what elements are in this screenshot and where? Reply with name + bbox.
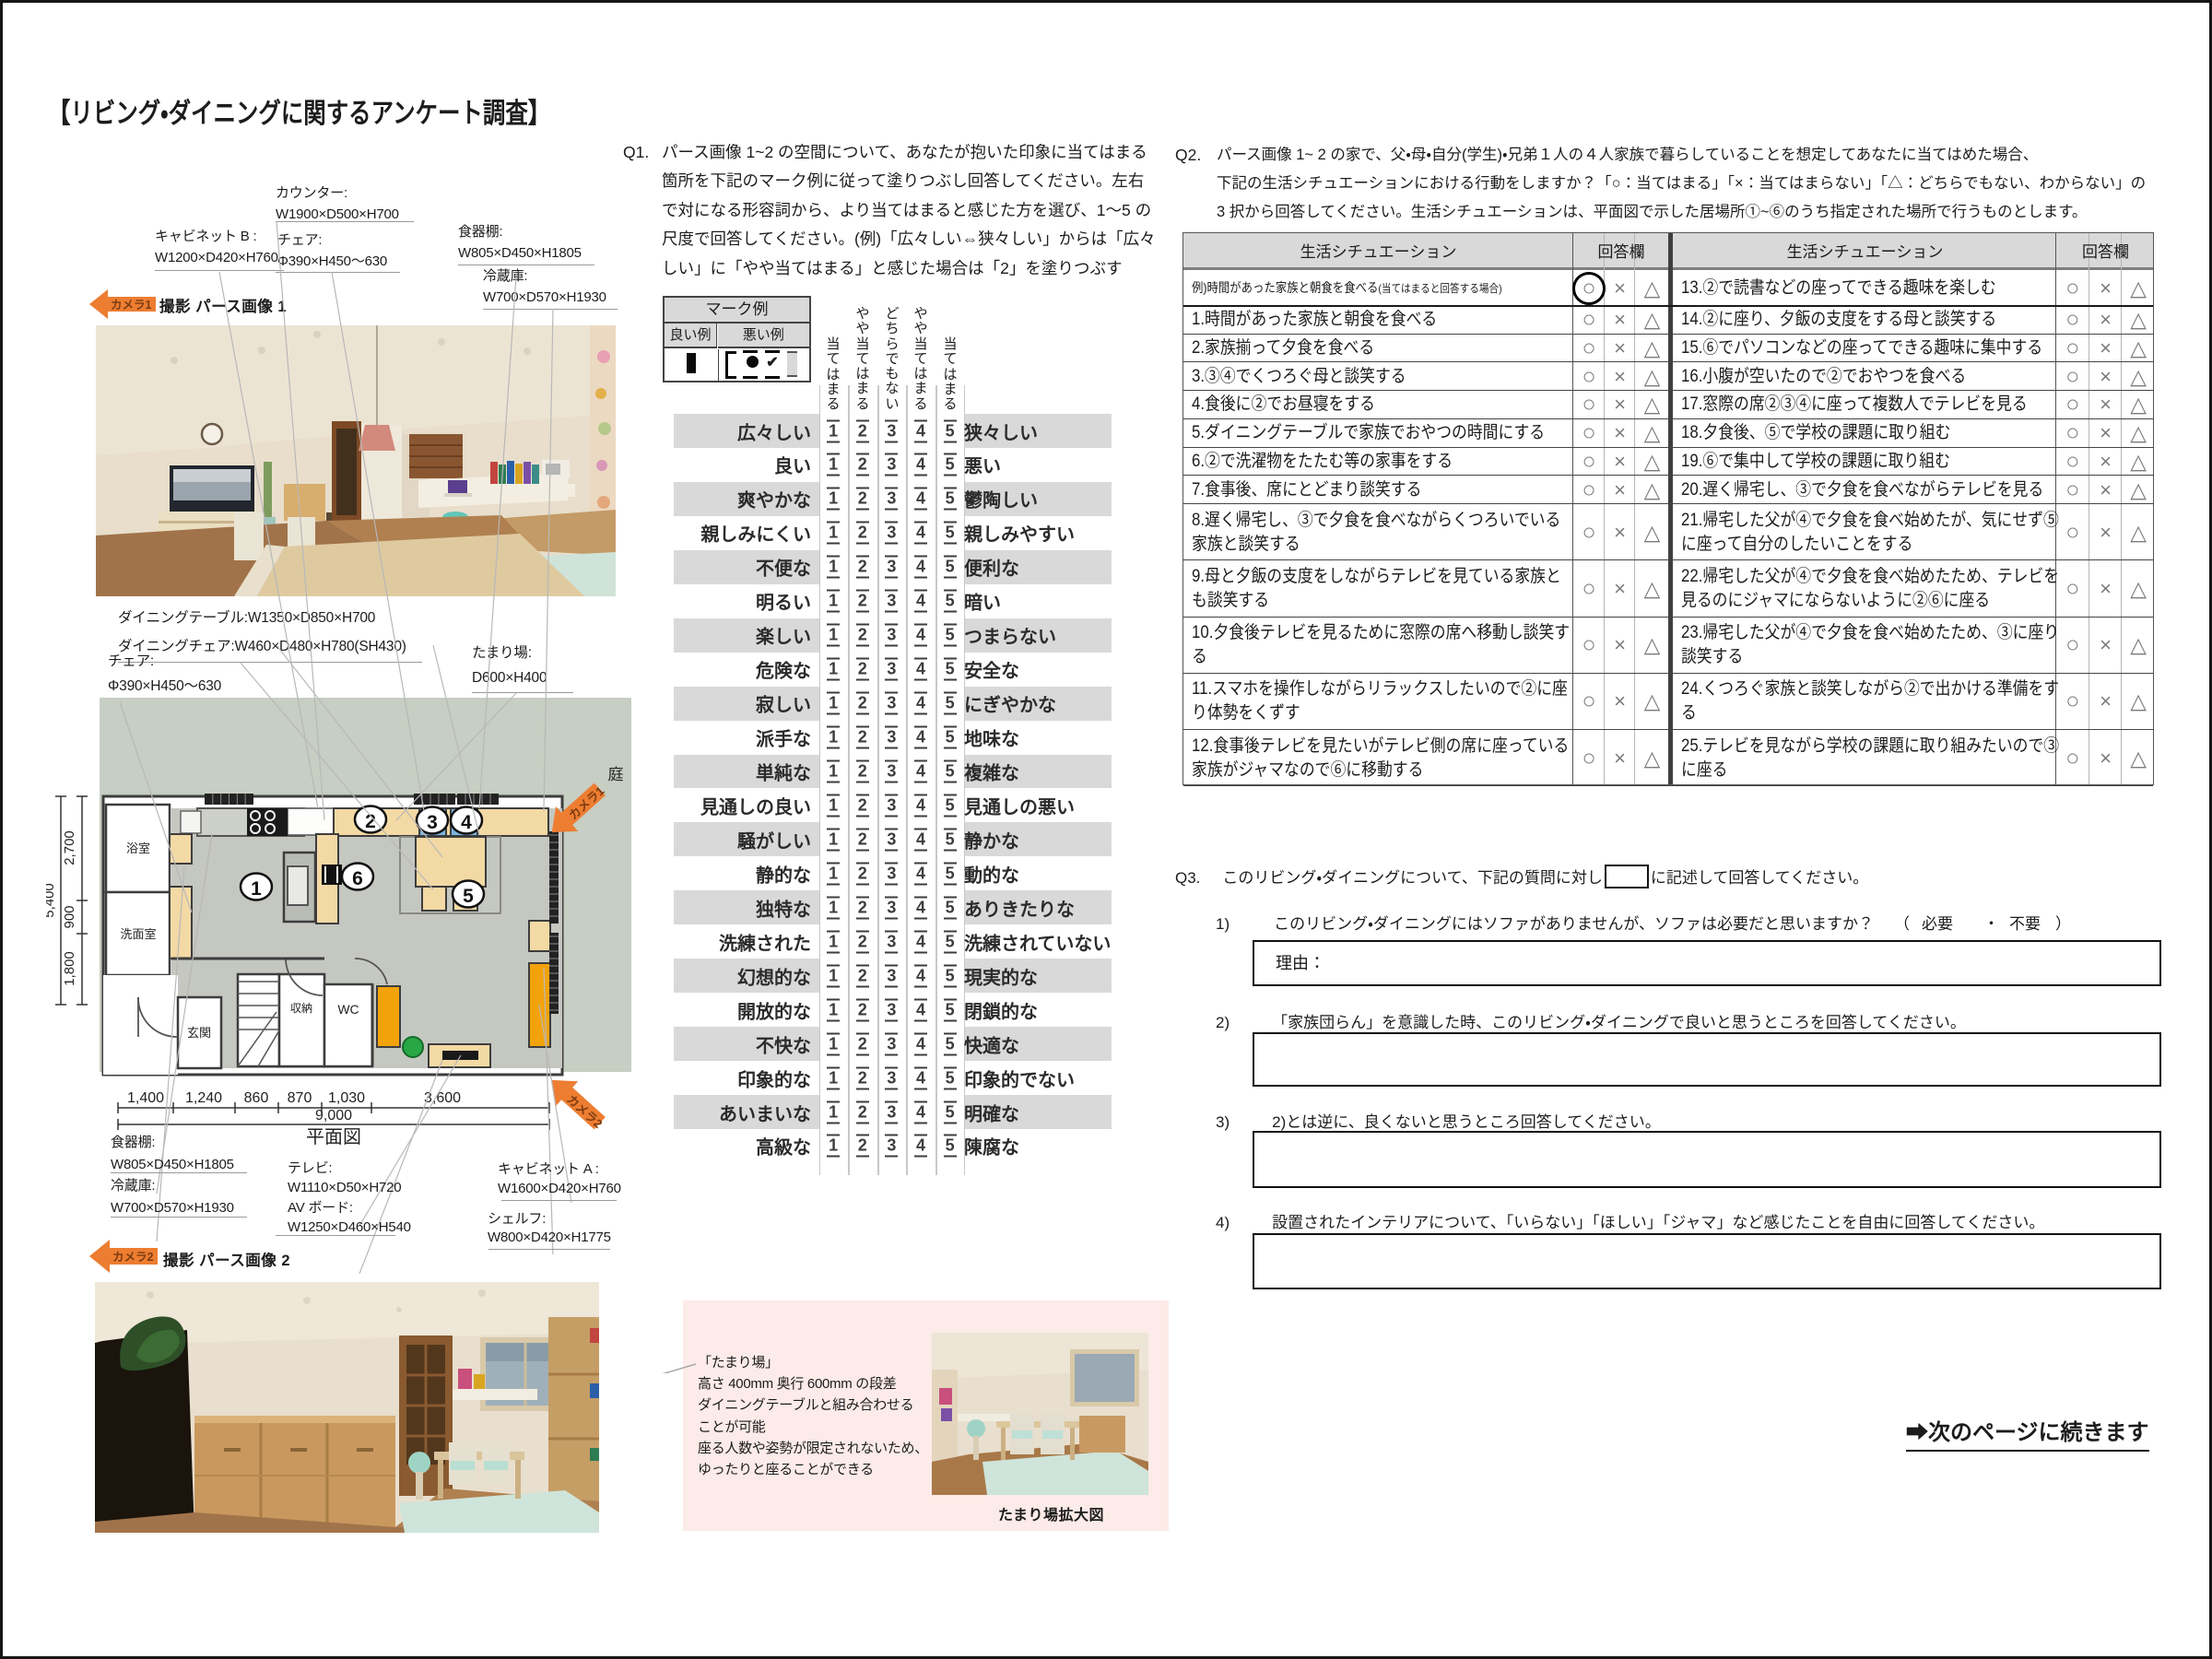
svg-text:1,030: 1,030	[328, 1090, 365, 1106]
svg-text:2,700: 2,700	[62, 830, 77, 865]
svg-text:860: 860	[244, 1090, 269, 1106]
svg-text:平面図: 平面図	[306, 1127, 361, 1147]
svg-text:カメラ2: カメラ2	[112, 1251, 154, 1264]
svg-text:5,400: 5,400	[46, 883, 57, 918]
svg-text:9,000: 9,000	[315, 1108, 352, 1124]
svg-text:6: 6	[352, 868, 363, 889]
svg-text:洗面室: 洗面室	[120, 927, 156, 941]
svg-text:WC: WC	[337, 1002, 359, 1017]
svg-text:5: 5	[463, 886, 474, 907]
svg-text:3: 3	[427, 812, 438, 833]
svg-text:玄関: 玄関	[187, 1026, 211, 1040]
svg-text:1: 1	[251, 878, 262, 900]
svg-text:1,400: 1,400	[127, 1090, 164, 1106]
svg-text:1,240: 1,240	[185, 1090, 222, 1106]
svg-text:浴室: 浴室	[126, 841, 150, 855]
svg-text:900: 900	[62, 905, 77, 928]
svg-text:870: 870	[288, 1090, 312, 1106]
svg-text:4: 4	[461, 812, 472, 833]
svg-text:2: 2	[365, 811, 376, 832]
svg-text:収納: 収納	[290, 1001, 312, 1015]
svg-text:1,800: 1,800	[62, 951, 77, 986]
